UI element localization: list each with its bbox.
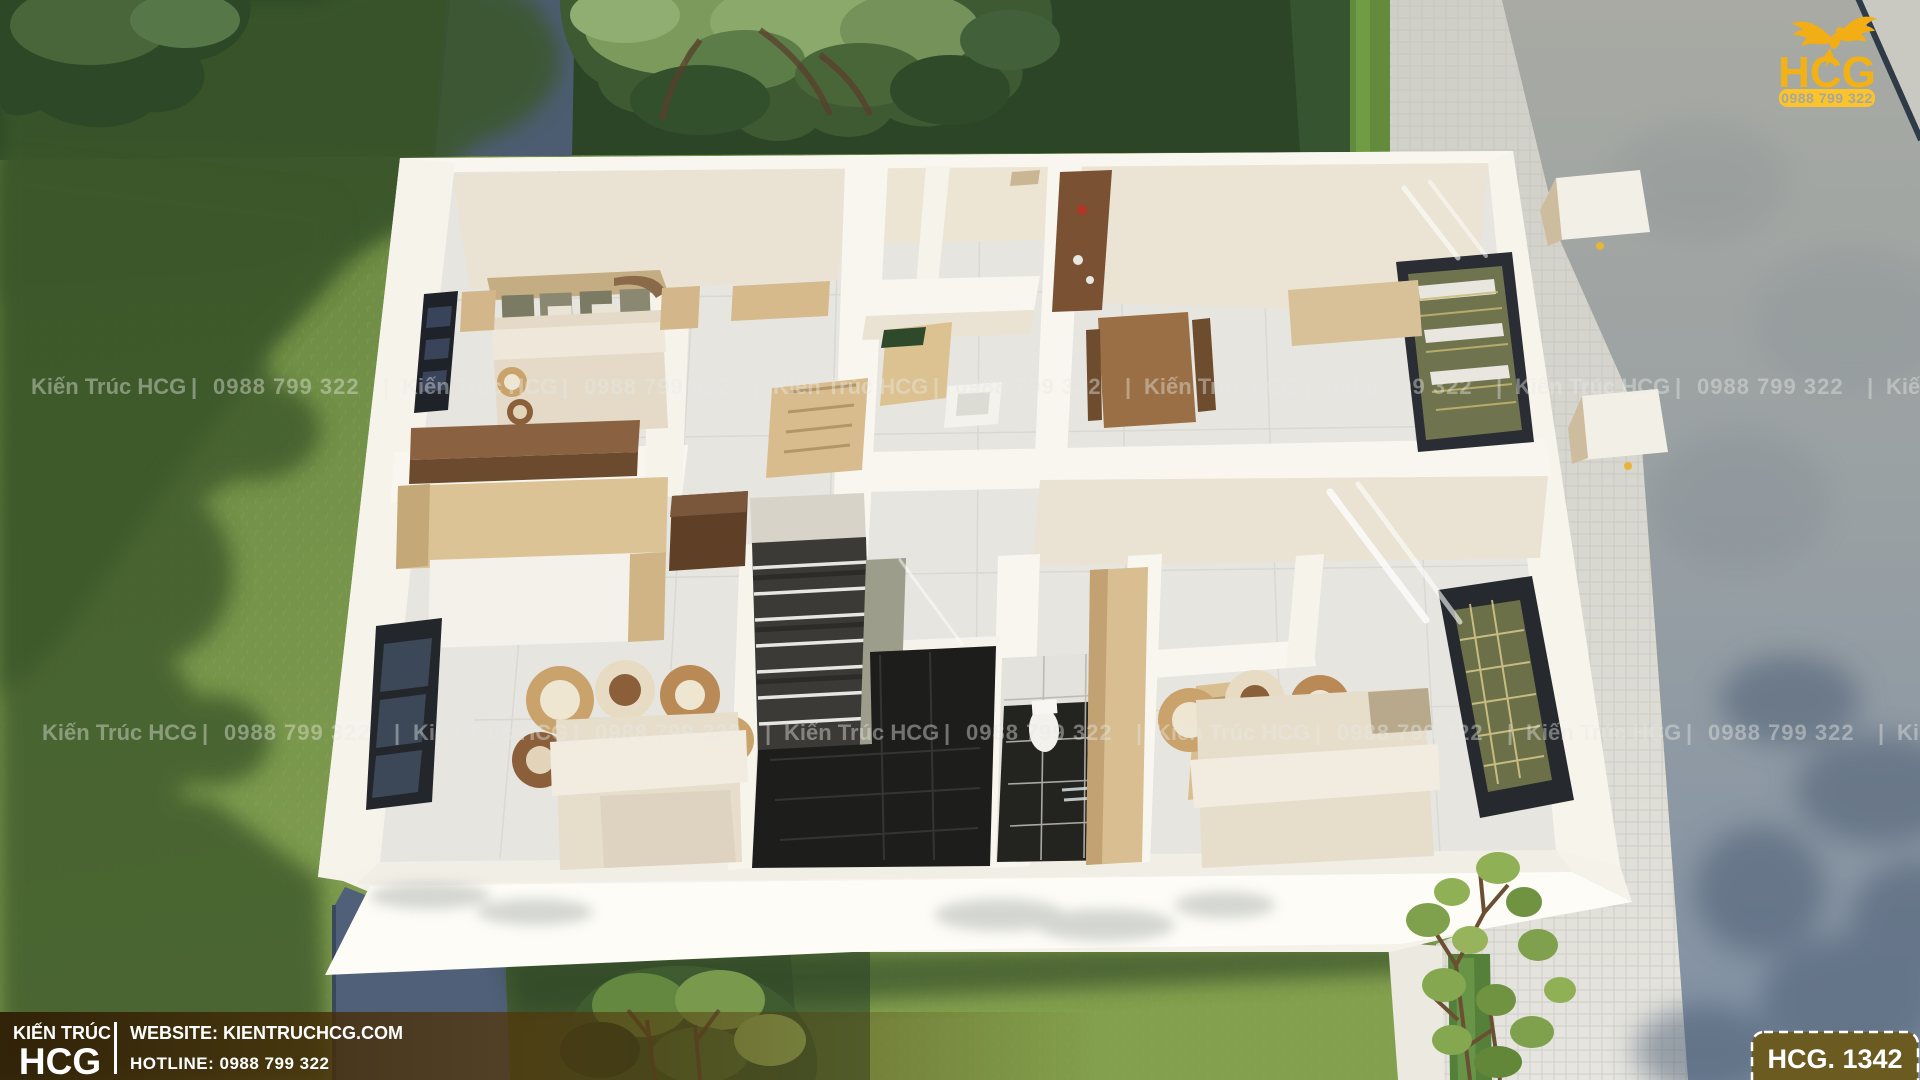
svg-text:0988 799 322: 0988 799 322: [1697, 374, 1844, 399]
svg-text:|: |: [1675, 374, 1681, 399]
svg-text:|: |: [1136, 720, 1142, 745]
svg-text:|: |: [383, 374, 389, 399]
svg-text:0988 799 322: 0988 799 322: [584, 374, 731, 399]
svg-text:|: |: [765, 720, 771, 745]
svg-text:Kiến Trúc HCG: Kiến Trúc HCG: [1526, 720, 1681, 745]
svg-text:KIẾN TRÚC: KIẾN TRÚC: [13, 1022, 111, 1043]
svg-text:|: |: [191, 374, 197, 399]
svg-text:0988 799 322: 0988 799 322: [224, 720, 371, 745]
svg-text:HCG: HCG: [19, 1041, 101, 1080]
svg-text:HCG. 1342: HCG. 1342: [1767, 1044, 1902, 1074]
svg-text:Kiến Trúc HCG: Kiến Trúc HCG: [773, 374, 928, 399]
svg-text:Kiến Trúc HCG: Kiến Trúc HCG: [1886, 374, 1920, 399]
svg-text:|: |: [573, 720, 579, 745]
svg-text:|: |: [1496, 374, 1502, 399]
svg-text:|: |: [754, 374, 760, 399]
svg-text:|: |: [1878, 720, 1884, 745]
svg-text:|: |: [1507, 720, 1513, 745]
svg-text:WEBSITE: KIENTRUCHCG.COM: WEBSITE: KIENTRUCHCG.COM: [130, 1023, 403, 1043]
svg-text:|: |: [562, 374, 568, 399]
svg-text:0988 799 322: 0988 799 322: [955, 374, 1102, 399]
svg-text:0988 799 322: 0988 799 322: [1781, 90, 1873, 106]
svg-text:Kiến Trúc HCG: Kiến Trúc HCG: [31, 374, 186, 399]
svg-text:0988 799 322: 0988 799 322: [966, 720, 1113, 745]
svg-text:|: |: [1867, 374, 1873, 399]
svg-text:0988 799 322: 0988 799 322: [595, 720, 742, 745]
svg-text:Kiến Trúc HCG: Kiến Trúc HCG: [1155, 720, 1310, 745]
svg-text:0988 799 322: 0988 799 322: [1326, 374, 1473, 399]
svg-text:|: |: [394, 720, 400, 745]
svg-text:Kiến Trúc HCG: Kiến Trúc HCG: [42, 720, 197, 745]
svg-text:Kiến Trúc HCG: Kiến Trúc HCG: [413, 720, 568, 745]
svg-text:|: |: [1304, 374, 1310, 399]
svg-text:|: |: [944, 720, 950, 745]
svg-text:Kiến Trúc HCG: Kiến Trúc HCG: [402, 374, 557, 399]
svg-text:|: |: [1686, 720, 1692, 745]
svg-text:Kiến Trúc HCG: Kiến Trúc HCG: [1897, 720, 1920, 745]
svg-text:|: |: [933, 374, 939, 399]
svg-text:0988 799 322: 0988 799 322: [1708, 720, 1855, 745]
svg-text:Kiến Trúc HCG: Kiến Trúc HCG: [1144, 374, 1299, 399]
svg-text:0988 799 322: 0988 799 322: [1337, 720, 1484, 745]
svg-text:|: |: [1125, 374, 1131, 399]
svg-text:0988 799 322: 0988 799 322: [213, 374, 360, 399]
svg-text:Kiến Trúc HCG: Kiến Trúc HCG: [1515, 374, 1670, 399]
svg-text:|: |: [202, 720, 208, 745]
svg-text:HOTLINE: 0988 799 322: HOTLINE: 0988 799 322: [130, 1054, 329, 1073]
svg-text:Kiến Trúc HCG: Kiến Trúc HCG: [784, 720, 939, 745]
svg-text:|: |: [1315, 720, 1321, 745]
